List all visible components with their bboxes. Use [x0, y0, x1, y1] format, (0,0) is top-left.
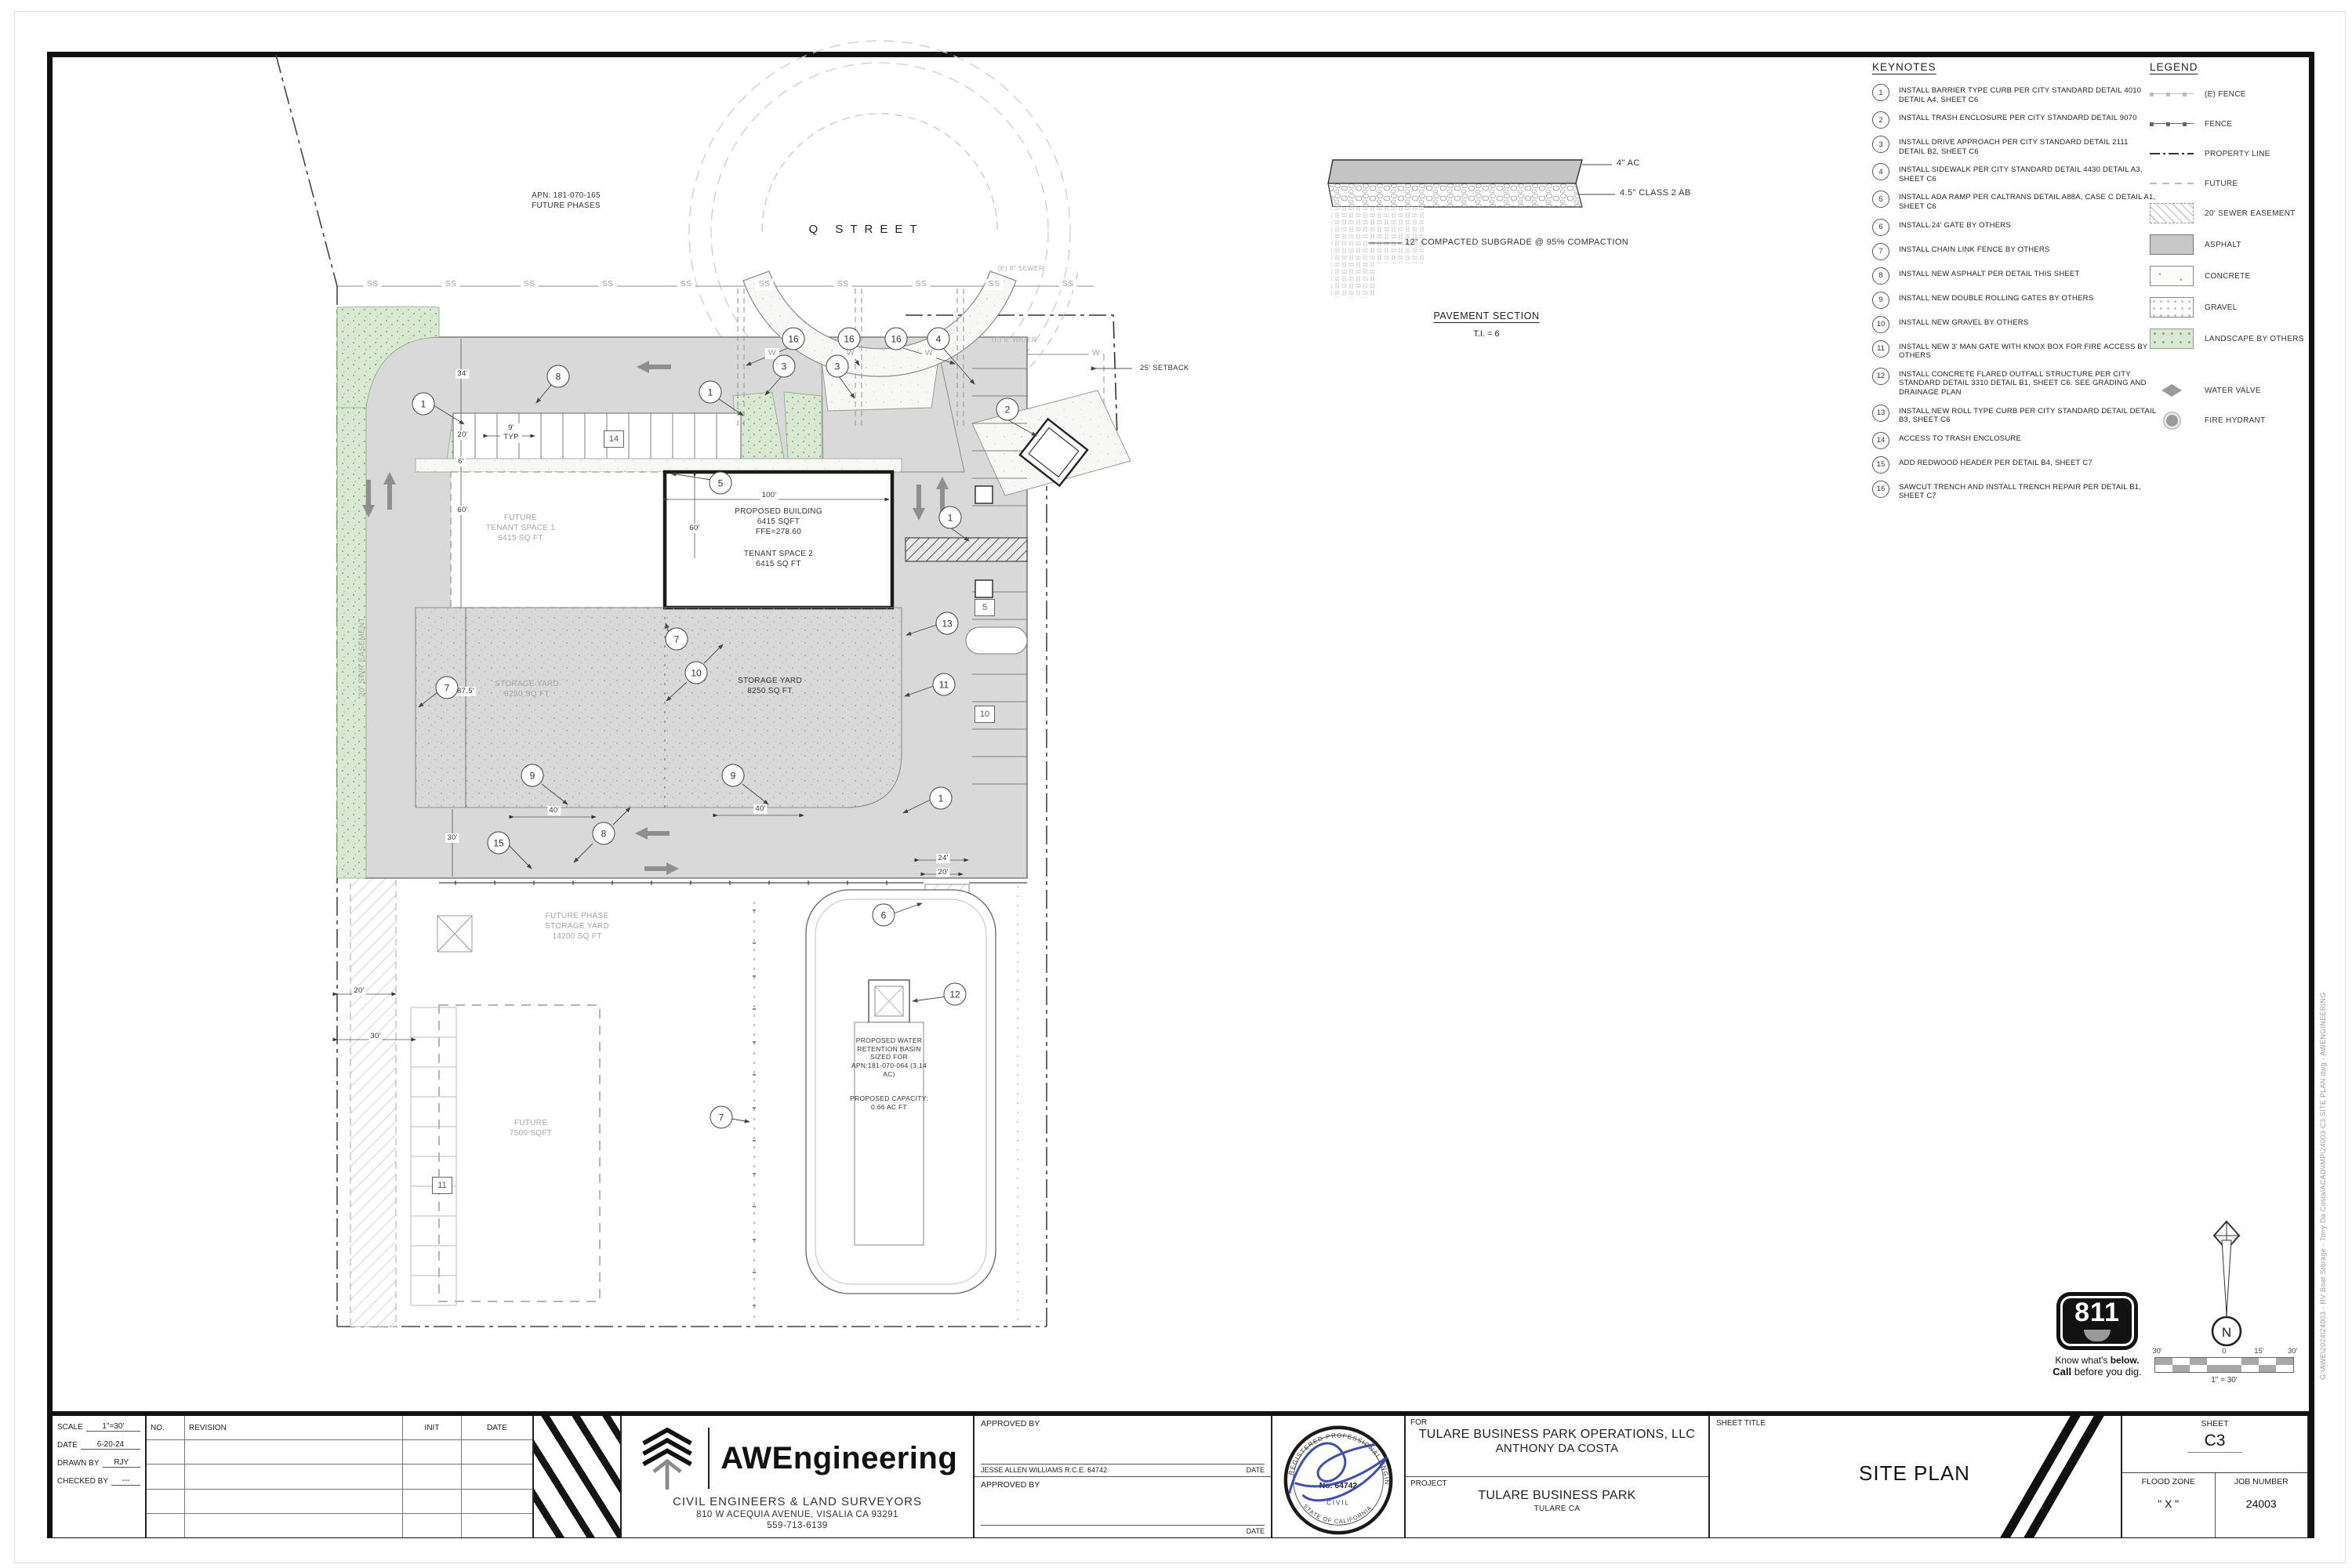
keynote-item: 12 INSTALL CONCRETE FLARED OUTFALL STRUC… [1872, 368, 2156, 397]
north-letter: N [2222, 1325, 2231, 1340]
pavement-section-title: PAVEMENT SECTION [1433, 310, 1539, 321]
revision-empty-row [147, 1440, 532, 1465]
dig-alert-811-icon: 811 [2056, 1292, 2138, 1350]
sheet-title-cell: SHEET TITLE SITE PLAN [1710, 1416, 2122, 1537]
south-future-area [411, 916, 600, 1327]
legend-swatch-icon [2150, 203, 2194, 223]
keynote-number: 7 [1872, 243, 1889, 260]
legend-label: (E) FENCE [2205, 90, 2246, 99]
graphic-scale-bar: 30' 0 15' 30' 1" = 30' [2154, 1347, 2294, 1385]
scale-value: 1"=30' [86, 1422, 140, 1432]
keynote-number: 14 [1872, 432, 1889, 449]
sheet-title-text: SITE PLAN [1859, 1461, 1970, 1486]
keynote-item: 7 INSTALL CHAIN LINK FENCE BY OTHERS [1872, 243, 2156, 260]
date-word: DATE [1247, 1466, 1265, 1474]
retention-basin [806, 890, 996, 1294]
legend-swatch-icon [2150, 173, 2194, 194]
scale-bar-cells [2154, 1357, 2294, 1373]
sheet-title-label: SHEET TITLE [1716, 1419, 1766, 1428]
keynote-text: INSTALL 24' GATE BY OTHERS [1899, 219, 2011, 230]
legend-item: FENCE [2150, 114, 2313, 134]
legend-swatch-icon [2150, 84, 2194, 104]
scale-tick-label: 30' [2152, 1347, 2161, 1356]
keynote-number: 12 [1872, 368, 1889, 385]
keynote-number: 16 [1872, 481, 1889, 498]
buildings [451, 472, 892, 608]
date-value: 6-20-24 [81, 1440, 140, 1450]
for-label: FOR [1410, 1418, 1427, 1427]
pavement-subgrade-label: 12" COMPACTED SUBGRADE @ 95% COMPACTION [1405, 238, 1628, 247]
legend-panel: LEGEND (E) FENCE FENCE PROPERTY LINE [2150, 61, 2313, 441]
scale-tick-label: 30' [2288, 1347, 2297, 1356]
keynote-number: 5 [1872, 191, 1889, 208]
project-location: TULARE CA [1406, 1504, 1708, 1513]
revision-header-no: NO. [147, 1416, 185, 1439]
keynote-item: 16 SAWCUT TRENCH AND INSTALL TRENCH REPA… [1872, 481, 2156, 501]
pavement-ac-label: 4" AC [1617, 158, 1640, 168]
legend-label: FENCE [2205, 120, 2232, 129]
keynote-text: SAWCUT TRENCH AND INSTALL TRENCH REPAIR … [1899, 481, 2156, 501]
hatch-divider-cell [534, 1416, 622, 1537]
flood-zone-value: " X " [2122, 1497, 2215, 1510]
pavement-ab-label: 4.5" CLASS 2 AB [1620, 188, 1691, 198]
legend-item: GRAVEL [2150, 297, 2313, 318]
legend-label: GRAVEL [2205, 303, 2238, 312]
keynotes-panel: KEYNOTES 1 INSTALL BARRIER TYPE CURB PER… [1872, 61, 2156, 508]
legend-label: LANDSCAPE BY OTHERS [2205, 335, 2304, 343]
keynote-item: 11 INSTALL NEW 3' MAN GATE WITH KNOX BOX… [1872, 340, 2156, 361]
keynote-text: INSTALL ADA RAMP PER CALTRANS DETAIL A88… [1899, 191, 2156, 211]
revision-header-init: INIT [403, 1416, 462, 1439]
legend-swatch-icon [2150, 143, 2194, 164]
sheet-page: Q STREETAPN: 181-070-165 FUTURE PHASES(E… [0, 0, 2352, 1568]
keynote-item: 10 INSTALL NEW GRAVEL BY OTHERS [1872, 316, 2156, 333]
keynote-text: INSTALL BARRIER TYPE CURB PER CITY STAND… [1899, 84, 2156, 104]
revision-header-revision: REVISION [185, 1416, 403, 1439]
sheet-number: C3 [2187, 1432, 2243, 1453]
checked-by-value: --- [111, 1476, 140, 1486]
legend-swatch-icon [2150, 234, 2194, 255]
flood-zone-label: FLOOD ZONE [2122, 1477, 2215, 1486]
keynote-text: INSTALL SIDEWALK PER CITY STANDARD DETAI… [1899, 163, 2156, 183]
keynote-number: 6 [1872, 219, 1889, 236]
legend-label: FIRE HYDRANT [2205, 416, 2266, 425]
firm-phone: 559-713-6139 [767, 1521, 828, 1530]
keynote-item: 6 INSTALL 24' GATE BY OTHERS [1872, 219, 2156, 236]
client-project-cell: FOR TULARE BUSINESS PARK OPERATIONS, LLC… [1406, 1416, 1710, 1537]
keynote-number: 15 [1872, 456, 1889, 474]
north-arrow-icon: N [2205, 1217, 2249, 1355]
keynote-item: 15 ADD REDWOOD HEADER PER DETAIL B4, SHE… [1872, 456, 2156, 474]
legend-label: FUTURE [2205, 180, 2238, 188]
drawn-by-label: DRAWN BY [57, 1459, 100, 1468]
project-label: PROJECT [1410, 1479, 1447, 1488]
811-number: 811 [2074, 1298, 2120, 1327]
gravel-yards [416, 608, 902, 808]
approved-by-label-2: APPROVED BY [981, 1480, 1265, 1490]
legend-label: PROPERTY LINE [2205, 150, 2270, 158]
keynote-item: 2 INSTALL TRASH ENCLOSURE PER CITY STAND… [1872, 111, 2156, 129]
legend-swatch-icon [2150, 410, 2194, 430]
revision-table: NO. REVISION INIT DATE [147, 1416, 534, 1537]
legend-label: ASPHALT [2205, 241, 2241, 249]
keynote-text: INSTALL TRASH ENCLOSURE PER CITY STANDAR… [1899, 111, 2137, 123]
know-whats-below-text: Know what's below. [2038, 1355, 2156, 1366]
title-block: SCALE1"=30' DATE6-20-24 DRAWN BYRJY CHEC… [53, 1411, 2309, 1537]
keynote-number: 10 [1872, 316, 1889, 333]
approved-by-label: APPROVED BY [981, 1419, 1265, 1428]
keynote-item: 5 INSTALL ADA RAMP PER CALTRANS DETAIL A… [1872, 191, 2156, 211]
legend-title: LEGEND [2150, 61, 2313, 73]
legend-label: WATER VALVE [2205, 387, 2261, 395]
date-label: DATE [57, 1441, 78, 1450]
legend-item: (E) FENCE [2150, 84, 2313, 104]
pavement-ti-label: T.I. = 6 [1473, 329, 1499, 339]
revision-empty-row [147, 1465, 532, 1489]
keynote-number: 9 [1872, 292, 1889, 309]
scale-label: SCALE [57, 1423, 83, 1432]
legend-swatch-icon [2150, 328, 2194, 349]
firm-tagline: CIVIL ENGINEERS & LAND SURVEYORS [673, 1495, 922, 1508]
keynote-item: 8 INSTALL NEW ASPHALT PER DETAIL THIS SH… [1872, 267, 2156, 285]
revision-empty-row [147, 1514, 532, 1537]
revision-header-date: DATE [462, 1416, 532, 1439]
legend-item: CONCRETE [2150, 266, 2313, 286]
scale-caption: 1" = 30' [2154, 1376, 2294, 1385]
shovel-icon [2084, 1330, 2111, 1341]
legend-item: FUTURE [2150, 173, 2313, 194]
legend-label: CONCRETE [2205, 272, 2251, 281]
revision-empty-row [147, 1490, 532, 1514]
legend-swatch-icon [2150, 114, 2194, 134]
keynote-text: INSTALL CONCRETE FLARED OUTFALL STRUCTUR… [1899, 368, 2156, 397]
call-before-you-dig-text: Call before you dig. [2038, 1366, 2156, 1377]
legend-swatch-icon [2150, 297, 2194, 318]
scale-info-cell: SCALE1"=30' DATE6-20-24 DRAWN BYRJY CHEC… [53, 1416, 147, 1537]
keynote-number: 11 [1872, 340, 1889, 358]
drawn-by-value: RJY [103, 1458, 140, 1468]
stamp-discipline: CIVIL [1327, 1499, 1350, 1506]
keynote-item: 14 ACCESS TO TRASH ENCLOSURE [1872, 432, 2156, 449]
scale-tick-label: 15' [2254, 1347, 2263, 1356]
legend-item: 20' SEWER EASEMENT [2150, 203, 2313, 223]
call-811-block: 811 Know what's below. Call before you d… [2038, 1292, 2156, 1377]
legend-item: ASPHALT [2150, 234, 2313, 255]
awe-tree-logo-icon [637, 1423, 697, 1494]
job-number-label: JOB NUMBER [2216, 1477, 2308, 1486]
engineer-firm-cell: AWEngineering CIVIL ENGINEERS & LAND SUR… [622, 1416, 975, 1537]
keynotes-title: KEYNOTES [1872, 61, 2156, 73]
approvals-cell: APPROVED BY JESSE ALLEN WILLIAMS R.C.E. … [975, 1416, 1272, 1537]
file-path-margin-note: G:\AWE\2024\24003 - RV Boat Storage - To… [2319, 993, 2327, 1380]
legend-swatch-icon [2150, 266, 2194, 286]
date-word-2: DATE [1247, 1527, 1265, 1535]
keynote-text: INSTALL DRIVE APPROACH PER CITY STANDARD… [1899, 136, 2156, 156]
keynote-text: INSTALL NEW ASPHALT PER DETAIL THIS SHEE… [1899, 267, 2079, 279]
legend-item: PROPERTY LINE [2150, 143, 2313, 164]
engineer-stamp: REGISTERED PROFESSIONAL ENGINEER STATE O… [1272, 1416, 1406, 1537]
sheet-number-cell: SHEET C3 FLOOD ZONE " X " JOB NUMBER 240… [2122, 1416, 2309, 1537]
keynote-text: INSTALL NEW DOUBLE ROLLING GATES BY OTHE… [1899, 292, 2093, 303]
keynote-number: 4 [1872, 163, 1889, 180]
engineer-name: JESSE ALLEN WILLIAMS R.C.E. 64742 [981, 1466, 1107, 1474]
keynote-text: ADD REDWOOD HEADER PER DETAIL B4, SHEET … [1899, 456, 2092, 468]
keynote-item: 1 INSTALL BARRIER TYPE CURB PER CITY STA… [1872, 84, 2156, 104]
keynote-number: 13 [1872, 405, 1889, 422]
firm-name: AWEngineering [720, 1441, 957, 1476]
legend-item: LANDSCAPE BY OTHERS [2150, 328, 2313, 349]
keynote-item: 9 INSTALL NEW DOUBLE ROLLING GATES BY OT… [1872, 292, 2156, 309]
client-name: TULARE BUSINESS PARK OPERATIONS, LLC [1406, 1428, 1708, 1442]
legend-item: WATER VALVE [2150, 380, 2313, 401]
scale-tick-label: 0 [2222, 1347, 2226, 1356]
pavement-section-detail [1328, 160, 1615, 298]
legend-swatch-icon [2150, 380, 2194, 401]
keynote-text: INSTALL NEW GRAVEL BY OTHERS [1899, 316, 2028, 328]
sheet-label: SHEET [2122, 1419, 2307, 1428]
keynote-item: 4 INSTALL SIDEWALK PER CITY STANDARD DET… [1872, 163, 2156, 183]
keynote-number: 3 [1872, 136, 1889, 153]
keynote-text: INSTALL NEW 3' MAN GATE WITH KNOX BOX FO… [1899, 340, 2156, 361]
keynote-number: 2 [1872, 111, 1889, 129]
project-name: TULARE BUSINESS PARK [1406, 1489, 1708, 1503]
keynote-item: 3 INSTALL DRIVE APPROACH PER CITY STANDA… [1872, 136, 2156, 156]
logo-divider [708, 1428, 710, 1489]
client-contact: ANTHONY DA COSTA [1406, 1442, 1708, 1455]
job-number-value: 24003 [2216, 1497, 2308, 1510]
keynote-text: INSTALL NEW ROLL TYPE CURB PER CITY STAN… [1899, 405, 2156, 425]
legend-label: 20' SEWER EASEMENT [2205, 209, 2296, 218]
keynote-number: 1 [1872, 84, 1889, 101]
keynote-number: 8 [1872, 267, 1889, 285]
keynote-text: ACCESS TO TRASH ENCLOSURE [1899, 432, 2021, 444]
checked-by-label: CHECKED BY [57, 1477, 108, 1486]
keynote-item: 13 INSTALL NEW ROLL TYPE CURB PER CITY S… [1872, 405, 2156, 425]
keynote-text: INSTALL CHAIN LINK FENCE BY OTHERS [1899, 243, 2049, 255]
legend-item: FIRE HYDRANT [2150, 410, 2313, 430]
firm-address: 810 W ACEQUIA AVENUE, VISALIA CA 93291 [696, 1510, 898, 1519]
